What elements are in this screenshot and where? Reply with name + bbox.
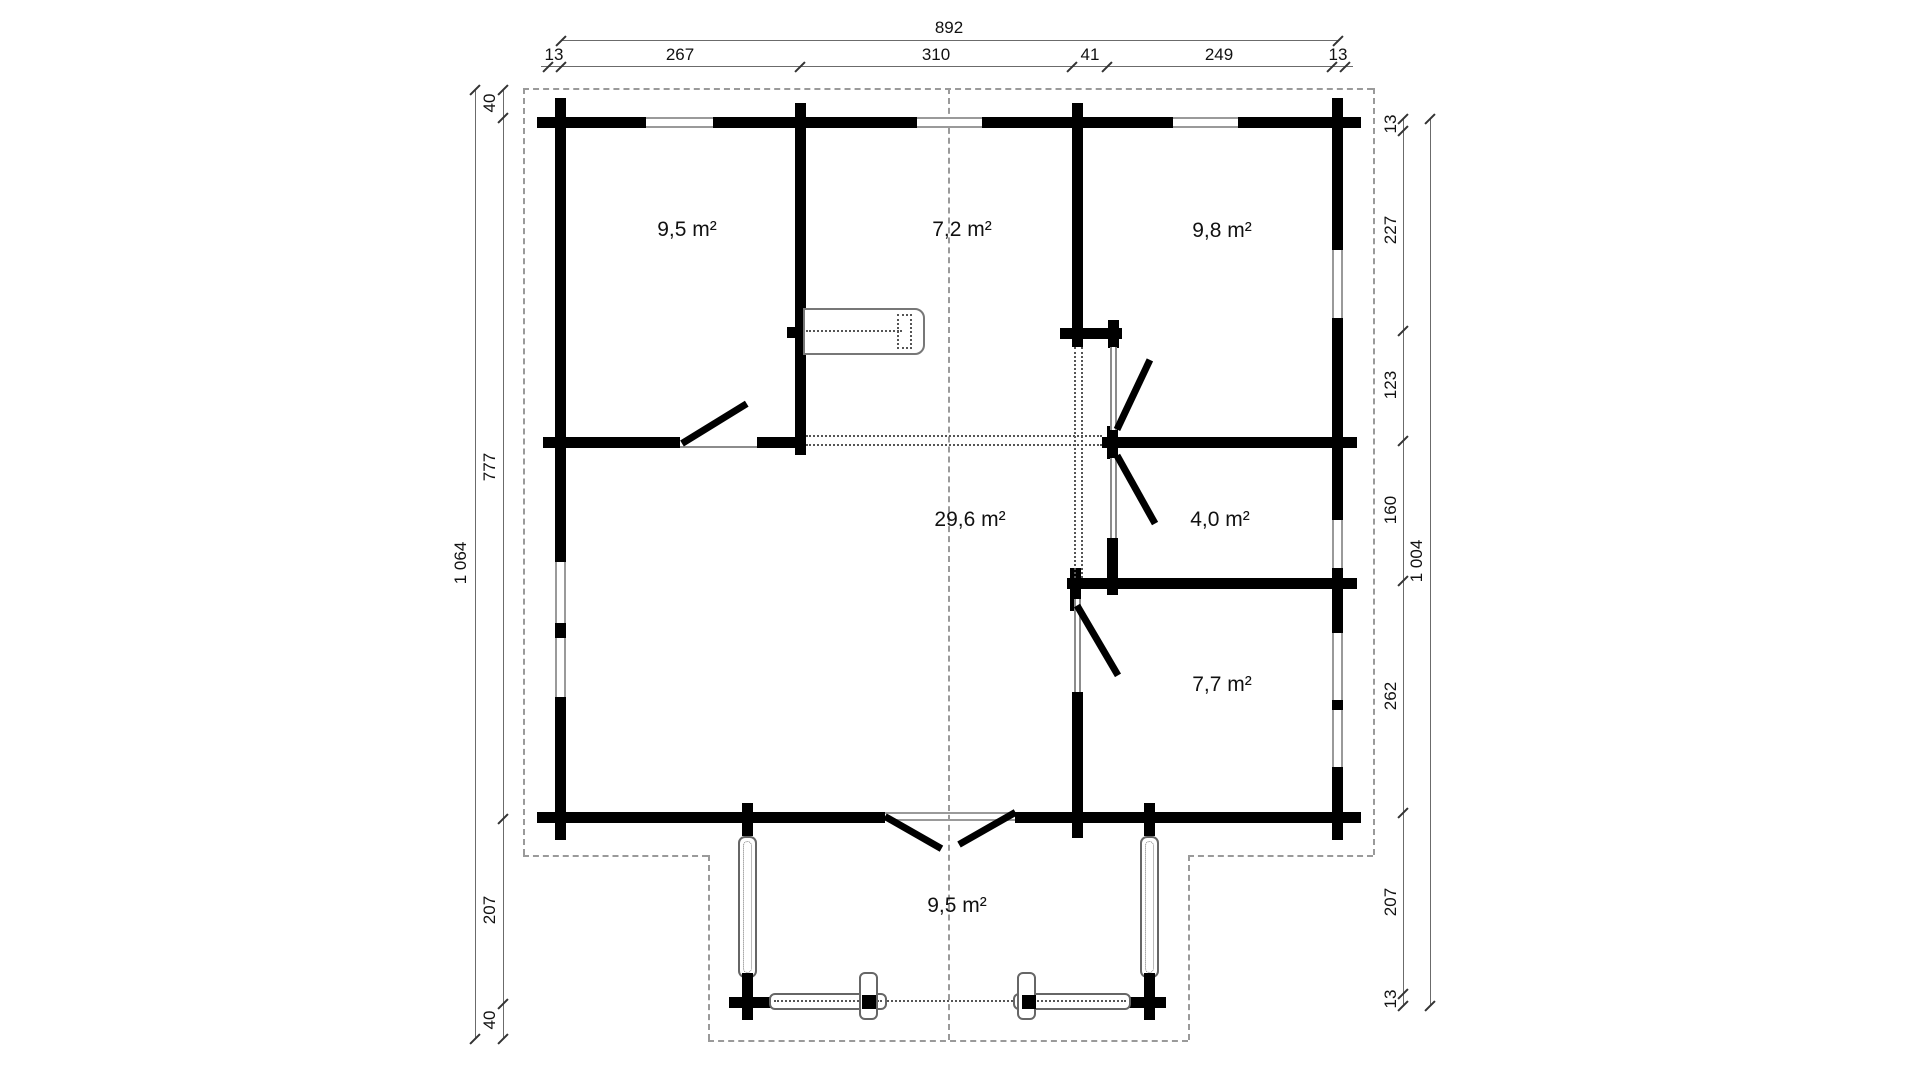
wall-bottom-right-segment [1015, 812, 1361, 823]
dim-label-top-seg1: 267 [666, 45, 694, 65]
room-label-top-left: 9,5 m² [657, 218, 717, 242]
window-right-room3 [1332, 250, 1343, 318]
porch-post-right-tick [1144, 803, 1155, 836]
room-label-small: 4,0 m² [1190, 508, 1250, 532]
dim-label-right-seg0: 13 [1381, 115, 1401, 134]
window-top-room1 [646, 117, 713, 128]
wall-left [555, 98, 566, 840]
room-label-porch: 9,5 m² [927, 894, 987, 918]
room-label-top-right: 9,8 m² [1192, 219, 1252, 243]
wall-h1-right [757, 437, 806, 448]
open-boundary-room2-b [806, 444, 1102, 446]
wall-partition-v3 [1072, 692, 1083, 838]
dim-label-top-seg4: 249 [1205, 45, 1233, 65]
porch-post-left-tick [742, 803, 753, 836]
bench-centerline [806, 330, 902, 332]
dim-label-top-overall: 892 [935, 18, 963, 38]
porch-door-leaf-right [957, 809, 1017, 847]
dim-label-left-seg3: 40 [480, 1011, 500, 1030]
overhang-dash-bottom-right [1188, 855, 1373, 857]
wall-h3 [1067, 578, 1357, 589]
overhang-dash-left [523, 88, 525, 855]
window-right-room6b [1332, 710, 1343, 767]
porch-pillar-left-core [743, 841, 752, 973]
wall-partition-v1 [795, 103, 806, 455]
dim-line-right-segments [1403, 118, 1404, 1005]
dim-label-top-seg0: 13 [545, 45, 564, 65]
wall-h2 [1102, 437, 1357, 448]
window-top-room2 [917, 117, 982, 128]
door-frame-room3 [1110, 347, 1117, 430]
wall-partition-v2 [1072, 103, 1083, 347]
window-right-room6a [1332, 633, 1343, 700]
porch-corner-post-left-h [729, 997, 773, 1008]
room-label-living: 29,6 m² [934, 508, 1005, 532]
dim-line-left-overall [475, 89, 476, 1038]
floor-plan-canvas: 9,5 m² 7,2 m² 9,8 m² 29,6 m² 4,0 m² 7,7 … [0, 0, 1920, 1080]
porch-overhang-dash-bottom [708, 1040, 1188, 1042]
wall-v2-stub-post [1108, 320, 1119, 348]
porch-overhang-dash-right [1188, 855, 1190, 1040]
open-boundary-hall-b [1081, 347, 1083, 578]
overhang-dash-bottom-left [523, 855, 708, 857]
dim-label-right-seg5: 207 [1381, 888, 1401, 916]
window-right-room4 [1332, 520, 1343, 568]
wall-h2-post [1107, 426, 1118, 459]
porch-newel-left-cap [862, 995, 876, 1009]
dim-tick [1066, 61, 1077, 72]
dim-label-top-seg3: 41 [1081, 45, 1100, 65]
wall-bottom-left-segment [537, 812, 885, 823]
dim-label-right-seg4: 262 [1381, 682, 1401, 710]
porch-stair-gap-line [887, 1000, 1013, 1002]
dim-label-top-seg5: 13 [1329, 45, 1348, 65]
door-frame-room4 [1110, 458, 1117, 538]
room-label-bottom-right: 7,7 m² [1192, 673, 1252, 697]
wall-v1-log-tick [787, 327, 795, 338]
dim-line-top-segments [541, 66, 1353, 67]
porch-pillar-right-core [1145, 841, 1154, 973]
window-top-room3 [1173, 117, 1238, 128]
dim-label-left-seg0: 40 [480, 94, 500, 113]
window-left-a [555, 562, 566, 623]
overhang-dash-right [1373, 88, 1375, 855]
dim-label-right-seg1: 227 [1381, 216, 1401, 244]
window-left-b [555, 638, 566, 697]
dim-line-top-overall [561, 40, 1338, 41]
dim-tick [794, 61, 805, 72]
porch-pillar-left [738, 836, 757, 978]
dim-label-right-overall: 1 004 [1407, 540, 1427, 583]
door-leaf-room4 [1114, 454, 1158, 526]
dim-label-right-seg3: 160 [1381, 496, 1401, 524]
dim-label-left-overall: 1 064 [451, 542, 471, 585]
dim-line-right-overall [1430, 118, 1431, 1005]
dim-tick [1101, 61, 1112, 72]
porch-pillar-right [1140, 836, 1159, 978]
dim-label-left-seg2: 207 [480, 896, 500, 924]
porch-overhang-dash-left [708, 855, 710, 1040]
bench-headrest [897, 314, 912, 349]
dim-label-right-seg6: 13 [1381, 990, 1401, 1009]
open-boundary-hall-a [1074, 347, 1076, 578]
dim-label-right-seg2: 123 [1381, 371, 1401, 399]
porch-newel-right-cap [1022, 995, 1036, 1009]
dim-label-top-seg2: 310 [922, 45, 950, 65]
open-boundary-room2-a [806, 435, 1102, 437]
door-leaf-room6 [1074, 604, 1121, 677]
dim-line-left-segments [503, 89, 504, 1038]
room-label-top-middle: 7,2 m² [932, 218, 992, 242]
door-leaf-room3 [1114, 358, 1153, 431]
dim-label-left-seg1: 777 [480, 453, 500, 481]
wall-h1-left [543, 437, 680, 448]
porch-door-head-line [885, 812, 1015, 814]
